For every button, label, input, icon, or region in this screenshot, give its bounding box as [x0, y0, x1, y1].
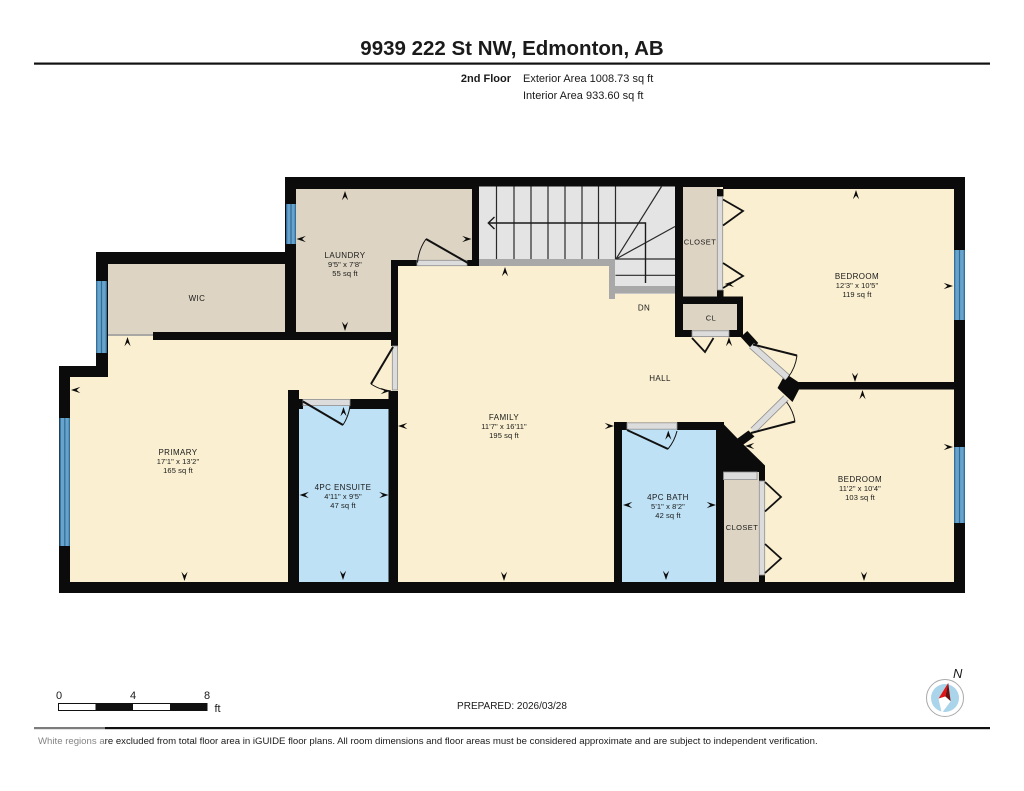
svg-text:CLOSET: CLOSET [726, 523, 758, 532]
svg-text:4: 4 [130, 690, 136, 702]
svg-text:165 sq ft: 165 sq ft [163, 466, 193, 475]
svg-text:PREPARED: 2026/03/28: PREPARED: 2026/03/28 [457, 701, 567, 712]
svg-text:195 sq ft: 195 sq ft [489, 431, 519, 440]
svg-text:9'5" x 7'8": 9'5" x 7'8" [328, 260, 362, 269]
svg-text:CLOSET: CLOSET [684, 238, 716, 247]
svg-text:Interior Area 933.60 sq ft: Interior Area 933.60 sq ft [523, 90, 643, 102]
svg-text:47 sq ft: 47 sq ft [330, 501, 356, 510]
svg-text:55 sq ft: 55 sq ft [332, 269, 358, 278]
svg-text:DN: DN [638, 304, 650, 313]
svg-text:N: N [953, 666, 963, 681]
svg-text:4PC BATH: 4PC BATH [647, 493, 689, 502]
svg-text:BEDROOM: BEDROOM [838, 475, 882, 484]
svg-text:9939 222 St NW, Edmonton, AB: 9939 222 St NW, Edmonton, AB [360, 37, 663, 60]
svg-text:PRIMARY: PRIMARY [158, 448, 197, 457]
svg-text:ft: ft [215, 703, 221, 715]
svg-text:2nd Floor: 2nd Floor [461, 73, 512, 85]
svg-text:WIC: WIC [189, 294, 206, 303]
svg-text:42 sq ft: 42 sq ft [655, 511, 681, 520]
svg-text:4PC ENSUITE: 4PC ENSUITE [315, 483, 372, 492]
svg-text:FAMILY: FAMILY [489, 413, 520, 422]
svg-text:White regions are excluded fro: White regions are excluded from total fl… [38, 736, 818, 747]
svg-text:17'1" x 13'2": 17'1" x 13'2" [157, 457, 200, 466]
svg-text:103 sq ft: 103 sq ft [845, 493, 875, 502]
svg-text:0: 0 [56, 690, 62, 702]
svg-text:Exterior Area 1008.73 sq ft: Exterior Area 1008.73 sq ft [523, 73, 653, 85]
svg-text:12'3" x 10'5": 12'3" x 10'5" [836, 281, 879, 290]
svg-text:CL: CL [706, 314, 716, 323]
svg-text:8: 8 [204, 690, 210, 702]
svg-text:BEDROOM: BEDROOM [835, 272, 879, 281]
svg-text:HALL: HALL [649, 374, 671, 383]
svg-text:11'7" x 16'11": 11'7" x 16'11" [481, 422, 527, 431]
svg-text:11'2" x 10'4": 11'2" x 10'4" [839, 484, 881, 493]
svg-text:4'11" x 9'5": 4'11" x 9'5" [324, 492, 362, 501]
svg-text:LAUNDRY: LAUNDRY [325, 251, 366, 260]
svg-text:119 sq ft: 119 sq ft [842, 290, 872, 299]
svg-text:5'1" x 8'2": 5'1" x 8'2" [651, 502, 685, 511]
